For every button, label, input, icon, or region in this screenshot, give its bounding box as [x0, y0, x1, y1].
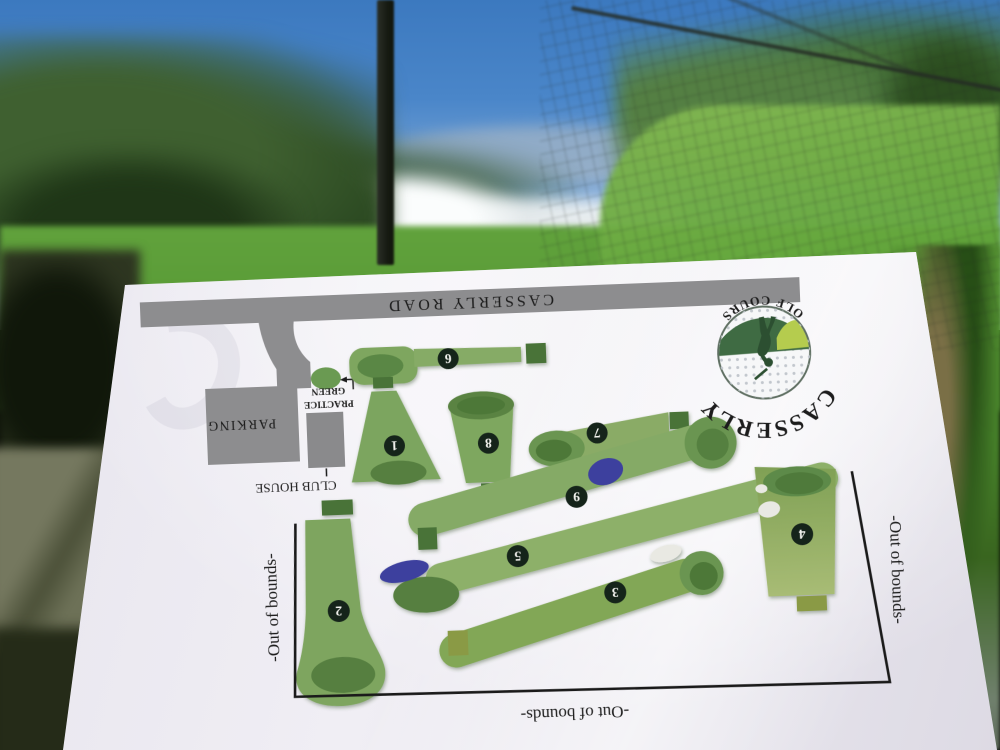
svg-text:1: 1	[391, 438, 399, 453]
hole-6-fairway	[414, 345, 522, 367]
hole-6-tee	[526, 343, 547, 364]
practice-green-arrow	[346, 379, 353, 389]
parking-label: PARKING	[207, 416, 277, 434]
photo-of-golf-course-map: CASSERLY ROAD PARKING CLUB HOUSE GREEN P…	[0, 0, 1000, 750]
practice-green-label-1: PRACTICE	[304, 397, 354, 409]
fence-post	[377, 0, 394, 265]
hole-1-tee	[373, 377, 393, 389]
svg-text:2: 2	[335, 603, 343, 618]
svg-text:3: 3	[611, 585, 619, 600]
svg-text:7: 7	[593, 425, 601, 440]
out-of-bounds-right-label: -Out of bounds-	[886, 515, 909, 625]
hole-4-tee	[797, 595, 828, 611]
hole-2-tee	[322, 499, 354, 515]
hole-3-tee	[448, 630, 469, 656]
svg-text:8: 8	[485, 435, 493, 450]
out-of-bounds-bottom-label: -Out of bounds-	[520, 702, 630, 725]
access-road	[259, 321, 312, 390]
svg-text:9: 9	[573, 489, 581, 504]
club-house-label: CLUB HOUSE	[255, 478, 337, 496]
svg-text:6: 6	[444, 351, 452, 366]
hole-9-tee	[418, 527, 438, 550]
svg-text:5: 5	[514, 548, 522, 563]
hole-3-fairway	[454, 576, 688, 651]
practice-green-label-2: GREEN	[311, 385, 345, 396]
practice-green-arrowhead	[340, 377, 347, 383]
out-of-bounds-left-label: -Out of bounds-	[261, 553, 284, 663]
club-house	[306, 412, 345, 468]
svg-text:4: 4	[798, 526, 806, 541]
course-map: CASSERLY ROAD PARKING CLUB HOUSE GREEN P…	[106, 253, 934, 750]
